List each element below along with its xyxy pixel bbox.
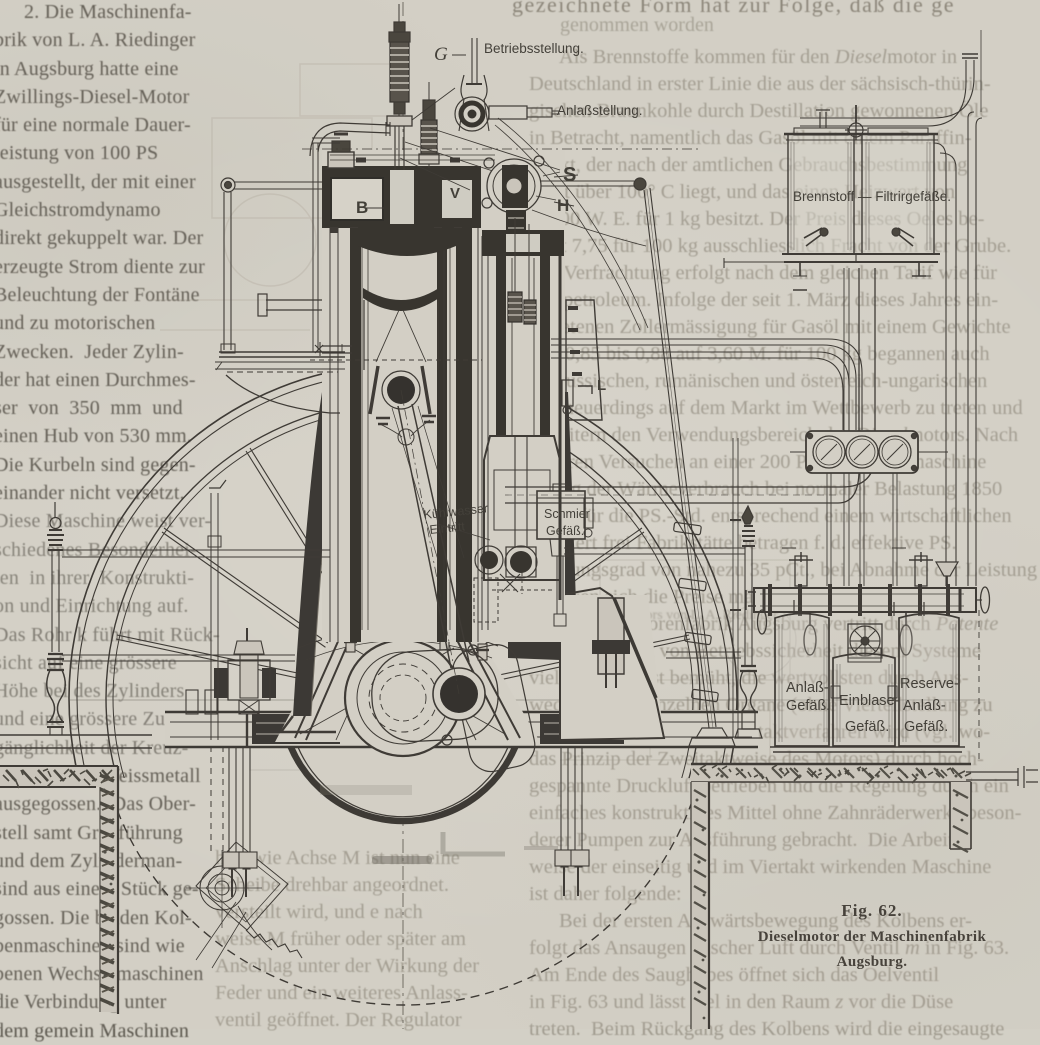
svg-text:— Filtrirgefäße.: — Filtrirgefäße. xyxy=(858,189,951,204)
svg-text:L: L xyxy=(597,377,606,394)
svg-text:Anlaß-: Anlaß- xyxy=(786,680,829,696)
svg-text:Gefäß.: Gefäß. xyxy=(845,719,889,735)
svg-text:Gefäß.: Gefäß. xyxy=(904,719,948,735)
svg-text:Anlaßstellung.: Anlaßstellung. xyxy=(557,103,643,118)
svg-text:V: V xyxy=(450,185,460,202)
svg-text:Brennstoff: Brennstoff xyxy=(793,189,855,204)
svg-text:Schmier: Schmier xyxy=(544,507,590,521)
svg-text:Einblase-: Einblase- xyxy=(839,693,900,709)
svg-text:G: G xyxy=(434,44,448,65)
svg-text:Gefäß.: Gefäß. xyxy=(546,524,584,538)
svg-text:Reserve-: Reserve- xyxy=(900,676,959,692)
svg-text:Anlaß-: Anlaß- xyxy=(903,698,946,714)
svg-text:Gefäß.: Gefäß. xyxy=(786,698,830,714)
svg-text:H: H xyxy=(557,196,569,215)
svg-text:B: B xyxy=(356,198,368,217)
svg-text:Betriebsstellung.: Betriebsstellung. xyxy=(484,41,584,56)
